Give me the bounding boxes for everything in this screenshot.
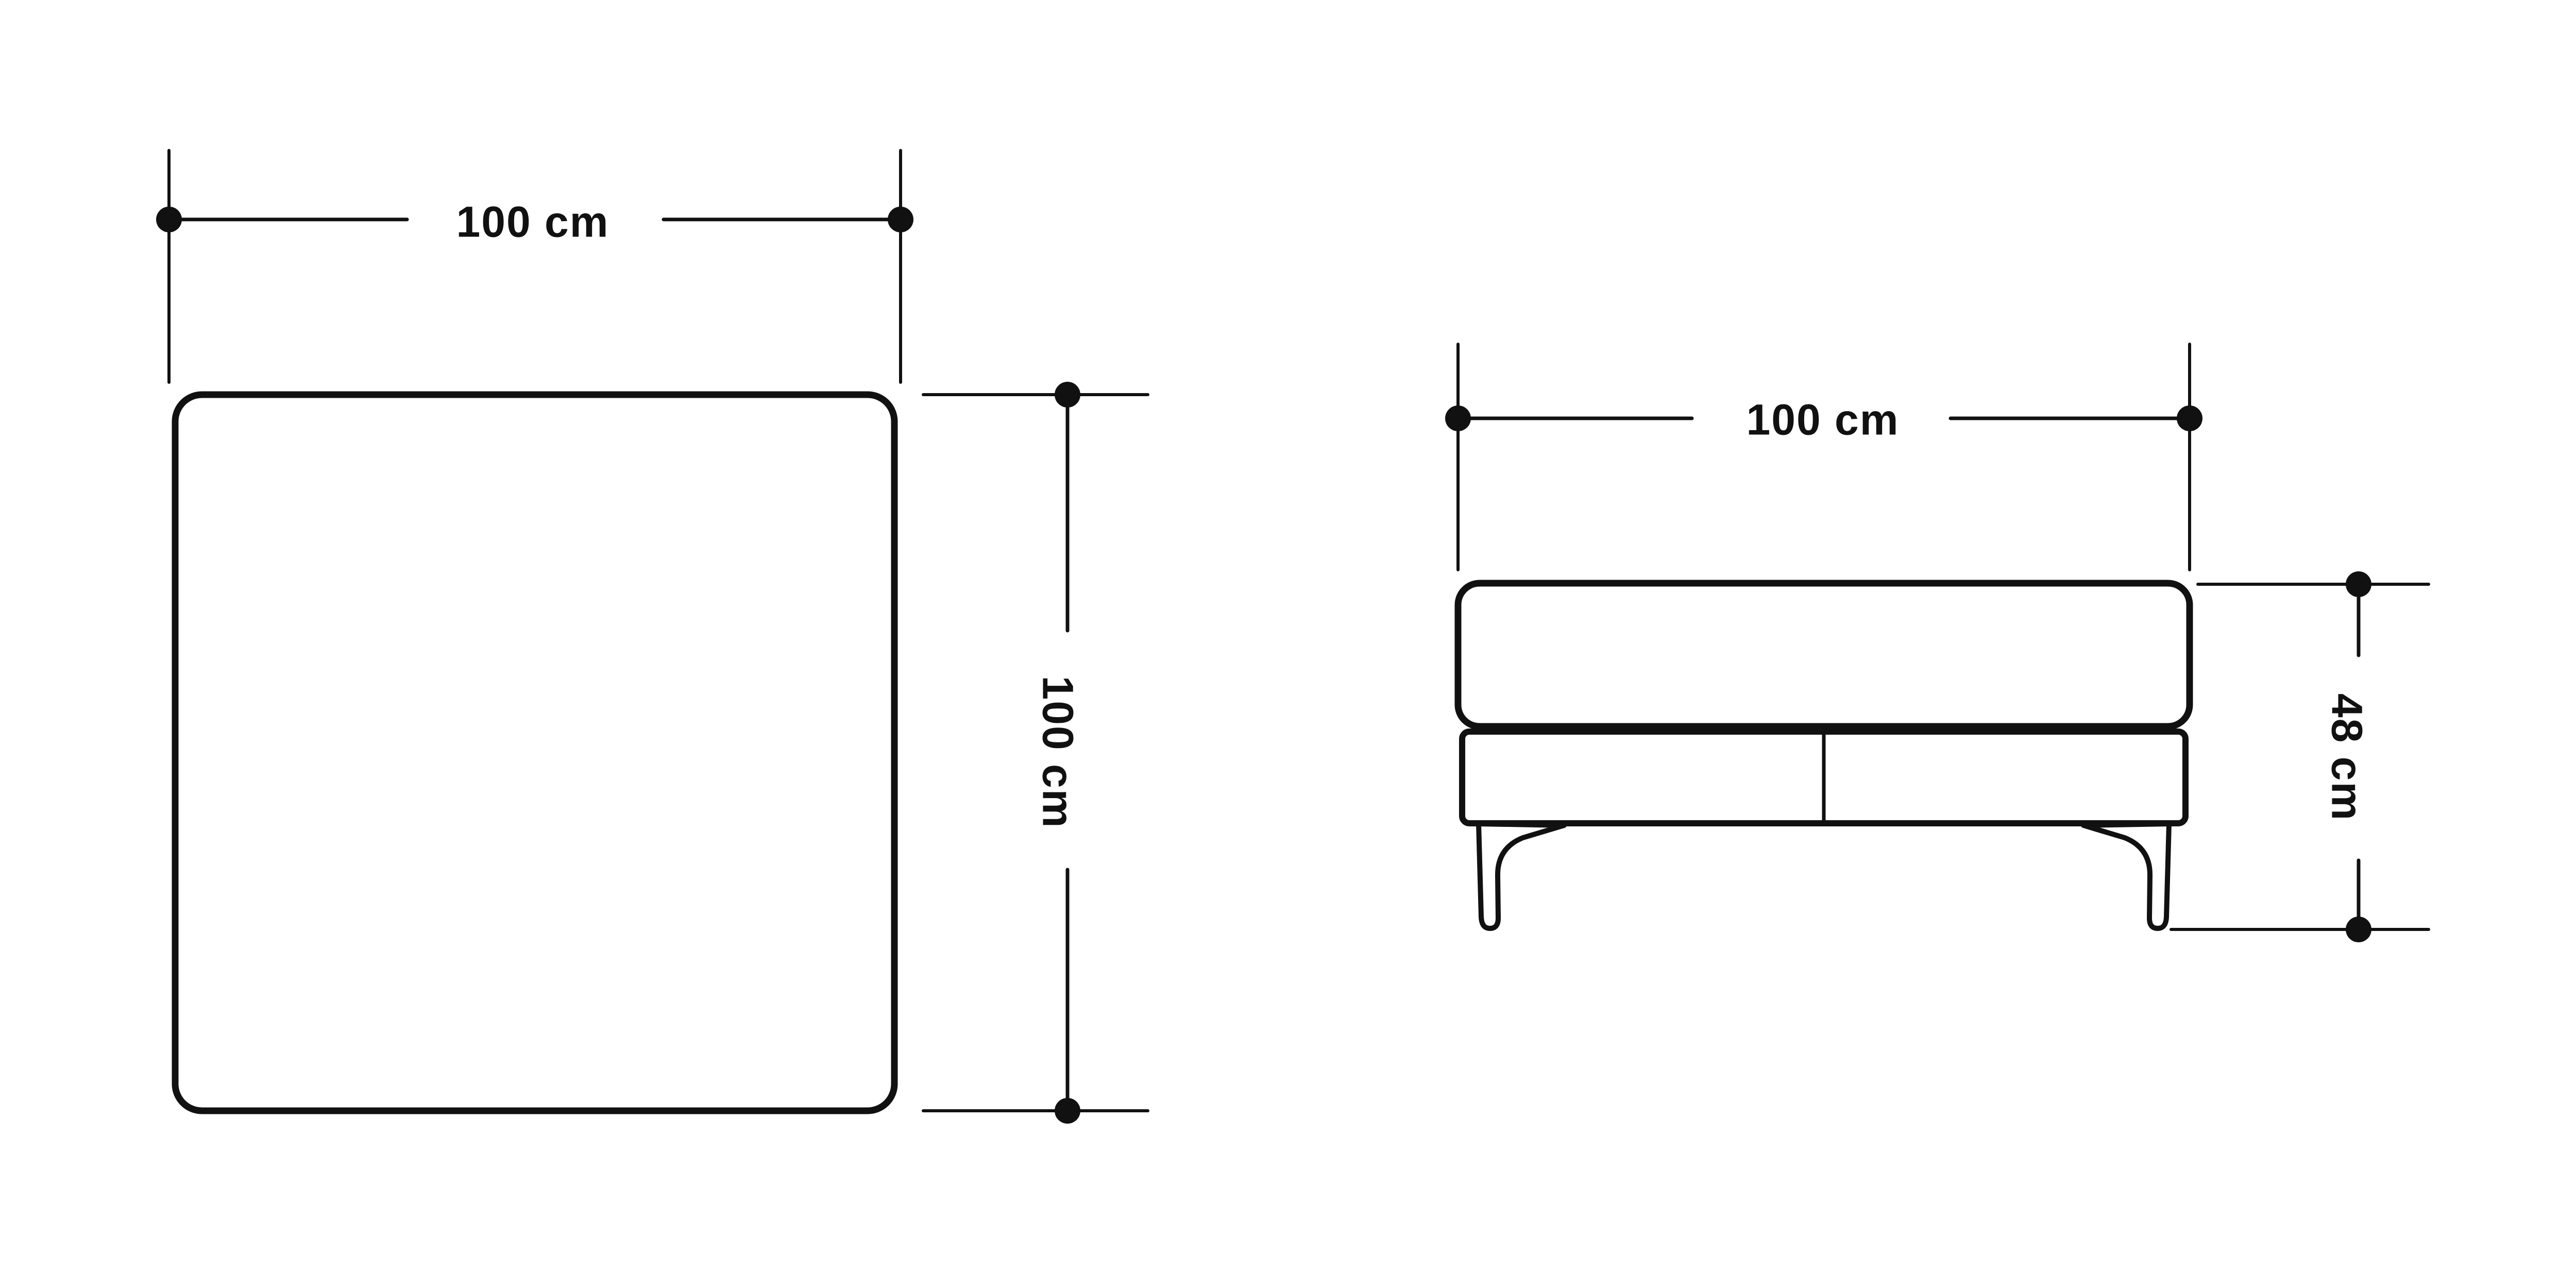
front-view-width-dimension	[1458, 344, 2190, 570]
dimension-endpoint-dot	[2346, 917, 2371, 942]
dimension-endpoint-dot	[2346, 571, 2371, 597]
front-view-height-dimension	[2171, 584, 2429, 929]
front-view	[1458, 344, 2429, 929]
front-view-height-label: 48 cm	[2323, 693, 2371, 821]
front-view-cushion	[1458, 583, 2190, 726]
front-view-width-label: 100 cm	[1747, 395, 1900, 444]
top-view-depth-label: 100 cm	[1034, 676, 1082, 829]
top-view-outline	[175, 395, 894, 1111]
top-view-width-label: 100 cm	[456, 197, 609, 246]
dimension-diagram-canvas: 100 cm 100 cm 100 cm 48 cm	[0, 0, 2576, 1288]
linework	[169, 150, 2429, 1111]
dimension-endpoint-dot	[1055, 1098, 1080, 1124]
dimension-endpoint-dot	[888, 207, 913, 232]
front-view-right-leg	[2083, 824, 2169, 928]
dimension-endpoint-dot	[1055, 382, 1080, 408]
dimension-endpoint-dot	[2177, 405, 2202, 431]
front-view-left-leg	[1479, 824, 1564, 928]
dimension-endpoint-dot	[1445, 405, 1471, 431]
furniture-dimension-drawing: 100 cm 100 cm 100 cm 48 cm	[0, 0, 2576, 1288]
top-view	[169, 150, 1148, 1111]
top-view-width-dimension	[169, 150, 901, 382]
dimension-endpoint-dot	[156, 207, 182, 232]
